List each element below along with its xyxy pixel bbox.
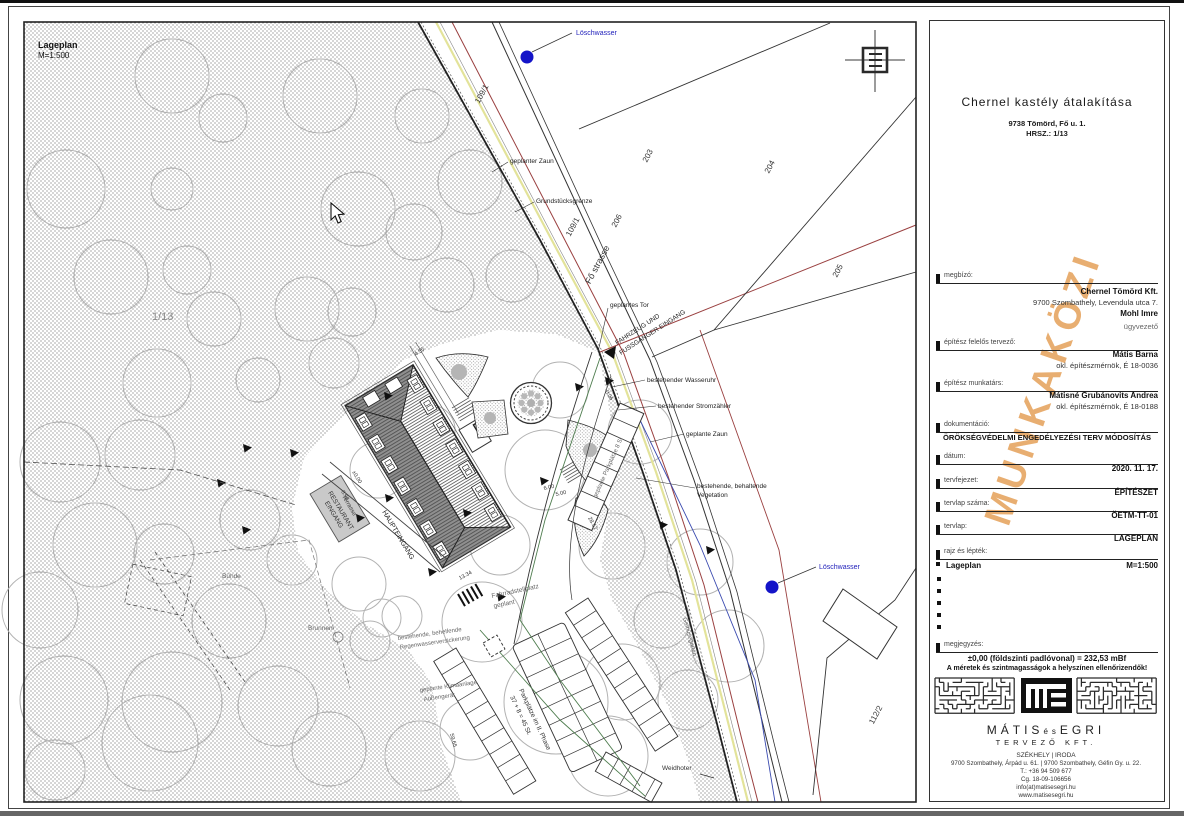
svg-text:geplante Zaun: geplante Zaun [686,431,728,438]
svg-text:T.: +36 94 509 677: T.: +36 94 509 677 [1020,768,1072,775]
svg-text:bestehende, behaltende: bestehende, behaltende [697,483,767,490]
svg-text:Weidhoter: Weidhoter [662,765,692,772]
svg-text:1/13: 1/13 [152,311,173,323]
svg-text:Vegetation: Vegetation [697,492,728,499]
svg-text:bestehender Stromzähler: bestehender Stromzähler [658,403,732,410]
svg-text:MÁTISésEGRI: MÁTISésEGRI [987,722,1105,737]
svg-text:Cg. 18-09-106656: Cg. 18-09-106656 [1021,776,1071,783]
svg-text:Löschwasser: Löschwasser [819,564,861,571]
svg-text:Löschwasser: Löschwasser [576,30,618,37]
svg-text:9700 Szombathely, Árpád u. 61.: 9700 Szombathely, Árpád u. 61. | 9700 Sz… [951,760,1141,767]
svg-text:Grundstücksgrenze: Grundstücksgrenze [536,198,593,205]
svg-text:Brunnen: Brunnen [308,625,333,632]
svg-text:www.matisesegri.hu: www.matisesegri.hu [1017,792,1074,799]
svg-text:geplantes Tor: geplantes Tor [610,302,650,309]
svg-text:SZÉKHELY | IRODA: SZÉKHELY | IRODA [1016,750,1076,759]
svg-text:Bühde: Bühde [222,573,241,580]
svg-text:bestehender Wasseruhr: bestehender Wasseruhr [647,377,717,384]
svg-text:geplanter Zaun: geplanter Zaun [510,158,554,165]
svg-text:info(at)matisesegri.hu: info(at)matisesegri.hu [1016,784,1076,791]
svg-text:Lageplan: Lageplan [38,40,78,50]
svg-text:TERVEZŐ KFT.: TERVEZŐ KFT. [996,738,1097,747]
svg-text:M=1:500: M=1:500 [38,51,70,60]
